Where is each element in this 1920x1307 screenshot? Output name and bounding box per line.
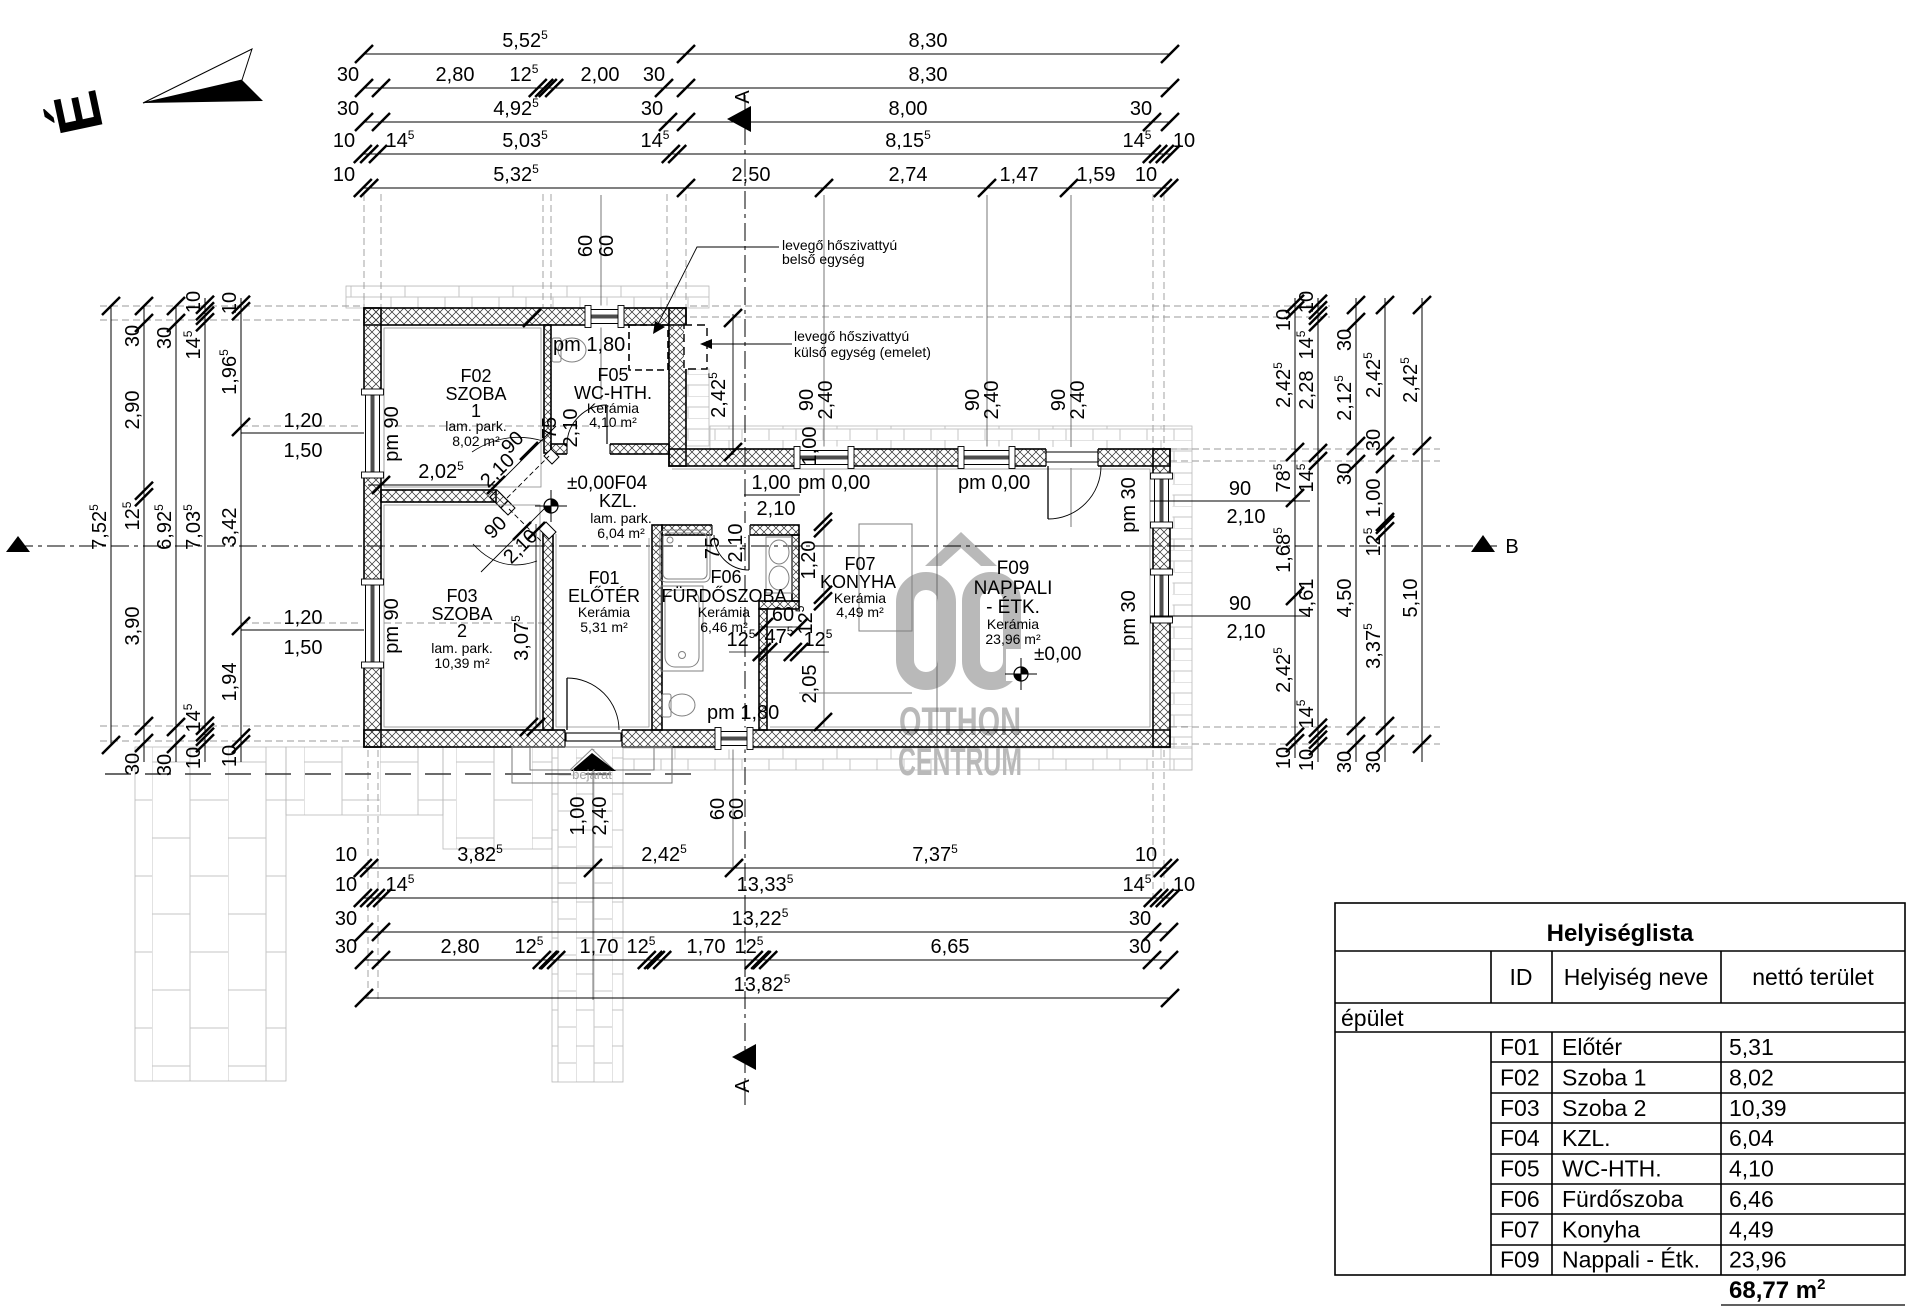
svg-text:10: 10	[335, 874, 357, 896]
svg-text:F02: F02	[460, 366, 491, 386]
svg-text:Kerámia: Kerámia	[698, 604, 750, 620]
svg-text:75: 75	[702, 537, 724, 559]
svg-text:10: 10	[1173, 874, 1195, 896]
svg-text:Kerámia: Kerámia	[987, 616, 1039, 632]
svg-text:6,65: 6,65	[931, 936, 970, 958]
svg-text:2,80: 2,80	[441, 936, 480, 958]
svg-text:8,02: 8,02	[1729, 1064, 1774, 1090]
svg-text:5,10: 5,10	[1400, 579, 1422, 618]
svg-text:1,20: 1,20	[798, 541, 820, 580]
svg-text:8,30: 8,30	[909, 30, 948, 52]
svg-text:60: 60	[575, 235, 597, 257]
svg-text:23,96: 23,96	[1729, 1247, 1787, 1273]
svg-text:Helyiség neve: Helyiség neve	[1564, 964, 1708, 990]
svg-text:KZL.: KZL.	[1562, 1125, 1611, 1151]
svg-text:F03: F03	[1500, 1095, 1540, 1121]
svg-text:F01: F01	[588, 568, 619, 588]
svg-text:KZL.: KZL.	[599, 491, 637, 511]
svg-text:10,39 m²: 10,39 m²	[434, 655, 490, 671]
svg-text:30: 30	[1334, 463, 1356, 485]
svg-text:2,10: 2,10	[1227, 506, 1266, 528]
svg-text:30: 30	[335, 936, 357, 958]
svg-text:30: 30	[122, 325, 144, 347]
svg-text:F07: F07	[844, 554, 875, 574]
svg-text:2,50: 2,50	[732, 164, 771, 186]
svg-text:pm 1,80: pm 1,80	[553, 334, 625, 356]
svg-text:ELŐTÉR: ELŐTÉR	[568, 585, 640, 606]
svg-text:F06: F06	[1500, 1186, 1540, 1212]
svg-text:10: 10	[333, 130, 355, 152]
svg-text:30: 30	[154, 754, 176, 776]
svg-text:8,02 m²: 8,02 m²	[452, 433, 500, 449]
svg-text:60: 60	[726, 798, 748, 820]
svg-text:13,335: 13,335	[737, 872, 794, 896]
svg-text:Szoba 1: Szoba 1	[1562, 1064, 1646, 1090]
svg-text:2,28: 2,28	[1296, 371, 1318, 410]
svg-text:pm 0,00: pm 0,00	[798, 472, 870, 494]
svg-text:8,00: 8,00	[889, 98, 928, 120]
svg-text:2,80: 2,80	[436, 64, 475, 86]
svg-text:belső egység: belső egység	[782, 251, 865, 267]
svg-text:2: 2	[457, 621, 467, 641]
svg-text:F04: F04	[1500, 1125, 1540, 1151]
svg-text:10: 10	[183, 747, 205, 769]
svg-text:30: 30	[337, 64, 359, 86]
svg-text:6,04: 6,04	[1729, 1125, 1774, 1151]
svg-text:F06: F06	[710, 567, 741, 587]
svg-text:68,77 m2: 68,77 m2	[1729, 1276, 1825, 1304]
svg-text:±0,00: ±0,00	[1034, 644, 1081, 665]
svg-text:1,70: 1,70	[580, 936, 619, 958]
svg-text:30: 30	[122, 753, 144, 775]
svg-text:ID: ID	[1510, 964, 1533, 990]
svg-text:30: 30	[1129, 908, 1151, 930]
svg-text:B: B	[1505, 536, 1518, 558]
svg-text:13,825: 13,825	[734, 972, 791, 996]
svg-text:lam. park.: lam. park.	[431, 640, 492, 656]
svg-text:13,225: 13,225	[732, 906, 789, 930]
svg-text:Konyha: Konyha	[1562, 1216, 1640, 1242]
svg-text:2,40: 2,40	[1067, 381, 1089, 420]
svg-text:pm 1,80: pm 1,80	[707, 702, 779, 724]
svg-text:4,10: 4,10	[1729, 1156, 1774, 1182]
svg-text:Szoba 2: Szoba 2	[1562, 1095, 1646, 1121]
svg-text:23,96 m²: 23,96 m²	[985, 631, 1041, 647]
svg-text:30: 30	[641, 98, 663, 120]
svg-text:10: 10	[333, 164, 355, 186]
svg-text:1,00: 1,00	[1363, 479, 1385, 518]
svg-text:NAPPALI: NAPPALI	[974, 578, 1053, 599]
svg-text:F05: F05	[1500, 1156, 1540, 1182]
svg-text:30: 30	[1363, 751, 1385, 773]
svg-text:2,00: 2,00	[581, 64, 620, 86]
svg-text:lam. park.: lam. park.	[590, 510, 651, 526]
svg-text:30: 30	[1130, 98, 1152, 120]
svg-text:F09: F09	[1500, 1247, 1540, 1273]
svg-text:külső egység (emelet): külső egység (emelet)	[794, 344, 931, 360]
svg-text:1,00: 1,00	[799, 427, 821, 466]
svg-text:10: 10	[183, 291, 205, 313]
svg-text:A: A	[732, 1079, 754, 1093]
svg-text:90: 90	[1229, 593, 1251, 615]
svg-text:2,10: 2,10	[725, 524, 747, 563]
svg-text:30: 30	[337, 98, 359, 120]
svg-text:2,40: 2,40	[815, 381, 837, 420]
svg-text:3,90: 3,90	[122, 607, 144, 646]
svg-text:WC-HTH.: WC-HTH.	[1562, 1156, 1662, 1182]
svg-text:4,49 m²: 4,49 m²	[836, 604, 884, 620]
svg-text:FÜRDŐSZOBA: FÜRDŐSZOBA	[661, 585, 786, 606]
svg-text:30: 30	[154, 327, 176, 349]
svg-text:10: 10	[335, 844, 357, 866]
svg-text:1,00: 1,00	[752, 472, 791, 494]
svg-text:90: 90	[1229, 478, 1251, 500]
svg-text:30: 30	[1129, 936, 1151, 958]
svg-text:KONYHA: KONYHA	[820, 572, 896, 592]
svg-text:4,61: 4,61	[1296, 579, 1318, 618]
svg-text:6,04 m²: 6,04 m²	[597, 525, 645, 541]
svg-text:2,90: 2,90	[122, 391, 144, 430]
svg-text:1,00: 1,00	[567, 797, 589, 836]
svg-text:F02: F02	[1500, 1064, 1540, 1090]
svg-text:10: 10	[1296, 291, 1318, 313]
svg-text:1,50: 1,50	[284, 440, 323, 462]
svg-text:pm 90: pm 90	[381, 406, 403, 462]
svg-text:30: 30	[1334, 329, 1356, 351]
svg-text:30: 30	[1334, 751, 1356, 773]
svg-text:levegő hőszivattyú: levegő hőszivattyú	[794, 328, 909, 344]
svg-text:10,39: 10,39	[1729, 1095, 1787, 1121]
svg-text:10: 10	[1173, 130, 1195, 152]
svg-text:A: A	[732, 90, 754, 104]
svg-text:1,20: 1,20	[284, 607, 323, 629]
svg-text:4,10 m²: 4,10 m²	[589, 414, 637, 430]
svg-text:4,50: 4,50	[1334, 579, 1356, 618]
svg-text:2,10: 2,10	[1227, 621, 1266, 643]
svg-text:pm 90: pm 90	[381, 598, 403, 654]
svg-text:2,40: 2,40	[981, 381, 1003, 420]
svg-text:pm 30: pm 30	[1118, 477, 1140, 533]
svg-text:- ÉTK.: - ÉTK.	[986, 597, 1040, 618]
svg-text:F01: F01	[1500, 1034, 1540, 1060]
svg-text:épület: épület	[1341, 1005, 1404, 1031]
svg-text:Fürdőszoba: Fürdőszoba	[1562, 1186, 1684, 1212]
svg-text:Előtér: Előtér	[1562, 1034, 1622, 1060]
svg-text:lam. park.: lam. park.	[445, 418, 506, 434]
svg-text:Kerámia: Kerámia	[578, 604, 630, 620]
svg-text:8,30: 8,30	[909, 64, 948, 86]
svg-text:30: 30	[643, 64, 665, 86]
svg-text:Helyiséglista: Helyiséglista	[1547, 920, 1694, 947]
svg-text:F05: F05	[597, 365, 628, 385]
svg-text:1,50: 1,50	[284, 637, 323, 659]
svg-text:2,10: 2,10	[560, 409, 582, 448]
svg-text:3,42: 3,42	[219, 508, 241, 547]
svg-text:5,31: 5,31	[1729, 1034, 1774, 1060]
svg-text:30: 30	[335, 908, 357, 930]
svg-text:10: 10	[1273, 747, 1295, 769]
svg-text:5,31 m²: 5,31 m²	[580, 619, 628, 635]
svg-text:30: 30	[1363, 429, 1385, 451]
svg-text:10: 10	[1273, 309, 1295, 331]
svg-text:pm 0,00: pm 0,00	[958, 472, 1030, 494]
svg-text:6,46: 6,46	[1729, 1186, 1774, 1212]
svg-text:1,94: 1,94	[219, 663, 241, 702]
svg-text:60: 60	[772, 604, 794, 626]
svg-text:F03: F03	[446, 586, 477, 606]
svg-text:bejárat: bejárat	[572, 767, 612, 782]
svg-text:1,59: 1,59	[1077, 164, 1116, 186]
svg-text:10: 10	[219, 292, 241, 314]
svg-text:2,40: 2,40	[589, 797, 611, 836]
svg-text:2,74: 2,74	[889, 164, 928, 186]
svg-text:10: 10	[219, 745, 241, 767]
svg-text:F07: F07	[1500, 1216, 1540, 1242]
svg-text:F09: F09	[997, 558, 1030, 579]
svg-text:60: 60	[596, 235, 618, 257]
svg-text:75: 75	[539, 417, 561, 439]
svg-text:2,10: 2,10	[757, 498, 796, 520]
svg-text:Nappali - Étk.: Nappali - Étk.	[1562, 1247, 1700, 1273]
svg-text:10: 10	[1296, 749, 1318, 771]
svg-text:4,49: 4,49	[1729, 1216, 1774, 1242]
svg-text:1,20: 1,20	[284, 410, 323, 432]
svg-text:1,70: 1,70	[687, 936, 726, 958]
svg-text:10: 10	[1135, 844, 1157, 866]
svg-text:10: 10	[1135, 164, 1157, 186]
svg-text:2,05: 2,05	[799, 665, 821, 704]
svg-text:nettó terület: nettó terület	[1752, 964, 1874, 990]
svg-text:1,47: 1,47	[1000, 164, 1039, 186]
svg-text:pm 30: pm 30	[1118, 590, 1140, 646]
